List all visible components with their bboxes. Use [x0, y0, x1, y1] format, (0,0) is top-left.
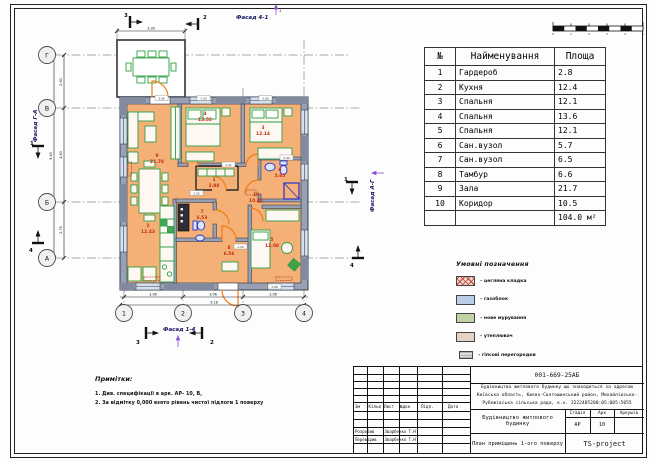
room-label-area: 6.53	[197, 215, 208, 221]
scale-tick: 4	[624, 32, 626, 36]
col-header-name: Найменування	[456, 48, 555, 66]
tb-role-name: Зварбенко Т.Н	[385, 437, 416, 442]
axis-label: 1	[122, 311, 126, 318]
cell-area: 12.4	[555, 80, 606, 95]
cell-num: 7	[425, 153, 456, 168]
legend-label: – гіпсові перегородки	[478, 353, 536, 358]
cell-area: 21.7	[555, 182, 606, 197]
axis-label: 3	[241, 311, 245, 318]
facade-top-ref: 1	[279, 9, 282, 13]
room-label-area: 13.55	[198, 117, 212, 123]
legend-swatch-pink	[456, 332, 475, 342]
dim-text: 3.30	[147, 27, 155, 31]
table-row: 6Сан.вузол5.7	[425, 138, 606, 153]
tb-company: TS-project	[565, 433, 644, 455]
tb-address-line: Рубежівська сільська рада, к.н. 32224852…	[472, 399, 642, 408]
section-label: 2	[203, 15, 207, 21]
tb-col-ndok: №док	[400, 404, 410, 409]
section-label: 1	[344, 177, 348, 183]
scale-tick: 3	[606, 32, 608, 36]
legend-item: – газоблок	[456, 291, 576, 310]
legend-swatch-hatch	[459, 351, 473, 359]
title-block: Зм Кільк Лист №док Підп. Дата Розробив З…	[353, 366, 643, 454]
tb-line	[354, 381, 470, 382]
section-label: 2	[210, 340, 214, 346]
tb-line	[354, 395, 470, 396]
legend-label: – нове мурування	[480, 316, 526, 321]
cell-area: 10.5	[555, 196, 606, 211]
dim-text: 3.06	[209, 293, 217, 297]
scale-bar: 0 1 2 3 4 5	[552, 22, 644, 36]
cell-name: Сан.вузол	[456, 153, 555, 168]
cell-area: 5.7	[555, 138, 606, 153]
tb-sheets-label: Аркушів	[614, 409, 644, 417]
cell-name: Сан.вузол	[456, 138, 555, 153]
table-row: 3Спальня12.1	[425, 95, 606, 110]
cell-num: 9	[425, 182, 456, 197]
tb-role-name: Зварбенко Т.Н	[385, 429, 416, 434]
room-label-area: 6.56	[224, 251, 235, 257]
cell-name: Тамбур	[456, 167, 555, 182]
tb-line	[354, 411, 470, 412]
cell-area: 6.5	[555, 153, 606, 168]
tb-project-code: 001-669-25АБ	[470, 367, 644, 383]
table-row: 8Тамбур6.6	[425, 167, 606, 182]
tb-col-lyst: Лист	[384, 404, 394, 409]
legend-label: – цегляна кладка	[480, 279, 527, 284]
scale-tick: 2	[588, 32, 590, 36]
axis-label: Б	[45, 200, 49, 207]
tb-sheet-value: 10	[590, 417, 614, 433]
table-row: 7Сан.вузол6.5	[425, 153, 606, 168]
legend-item: – утеплювач	[456, 328, 576, 347]
table-total-row: 104.0 м²	[425, 211, 606, 226]
axis-label: 2	[181, 311, 185, 318]
tb-col-pidp: Підп.	[421, 404, 434, 409]
dim-box: 1.50	[200, 97, 207, 101]
dim-box: 1.41	[225, 163, 232, 167]
cell-area: 12.1	[555, 95, 606, 110]
cell-total-area: 104.0 м²	[555, 211, 606, 226]
cell-num: 8	[425, 167, 456, 182]
room-label-num: 8	[227, 245, 230, 251]
room-label-area: 12.43	[141, 229, 155, 235]
legend-label: – газоблок	[480, 297, 508, 302]
dim-box: 3.06	[271, 285, 278, 289]
tb-role: Розробив	[355, 429, 374, 434]
dim-text: 9.18	[210, 301, 218, 305]
cell-num: 1	[425, 66, 456, 81]
scale-tick: 5	[642, 32, 644, 36]
notes-title: Примітки:	[95, 375, 345, 383]
legend-swatch-green	[456, 313, 475, 323]
tb-line	[417, 367, 418, 453]
room-schedule-table: № Найменування Площа 1Гардероб2.8 2Кухня…	[424, 47, 606, 226]
table-row: 10Коридор10.5	[425, 196, 606, 211]
cell-name: Спальня	[456, 95, 555, 110]
axis-label: Г	[45, 53, 49, 60]
axis-label: В	[45, 106, 49, 113]
table-row: 2Кухня12.4	[425, 80, 606, 95]
tb-role: Перевірив	[355, 437, 377, 442]
cell-num: 2	[425, 80, 456, 95]
tb-col-kilk: Кільк	[369, 404, 382, 409]
facade-top-label: Фасад 4-1	[236, 15, 269, 21]
tb-line	[354, 419, 470, 420]
legend-item: – нове мурування	[456, 309, 576, 328]
dim-text: 4.60	[59, 151, 63, 159]
note-line: 2. За відмітку 0,000 взято рівень чистої…	[95, 401, 345, 406]
room-label-num: 6	[278, 167, 281, 173]
cell-num	[425, 211, 456, 226]
cell-name: Гардероб	[456, 66, 555, 81]
room-label-num: 3	[261, 125, 264, 131]
notes: Примітки: 1. Див. специфікації в арк. АР…	[95, 375, 345, 410]
tb-line	[354, 374, 470, 375]
section-label: 3	[136, 340, 140, 346]
facade-right-label: Фасад А-Г	[370, 179, 376, 212]
legend: Умовні позначення – цегляна кладка – газ…	[456, 261, 576, 365]
cell-area: 13.6	[555, 109, 606, 124]
dim-text: 3.06	[269, 293, 277, 297]
table-row: 5Спальня12.1	[425, 124, 606, 139]
cell-area: 12.1	[555, 124, 606, 139]
porch	[117, 40, 185, 97]
room-label-num: 5	[270, 237, 273, 243]
room-label-num: 1	[212, 177, 215, 183]
legend-label: – утеплювач	[480, 334, 513, 339]
legend-title: Умовні позначення	[456, 261, 576, 268]
dim-box: 0.90	[283, 156, 290, 160]
room-label-area: 2.88	[209, 183, 220, 189]
room-label-area: 21.78	[150, 159, 164, 165]
cell-name: Спальня	[456, 109, 555, 124]
tb-sheet-title: План приміщень 1-ого поверху	[470, 433, 565, 455]
legend-swatch-brick	[456, 276, 475, 286]
room-label-area: 5.65	[275, 173, 286, 179]
room-label-num: 7	[200, 209, 203, 215]
dim-box: 2.05	[193, 192, 200, 196]
tb-stage-label: Стадія	[565, 409, 590, 417]
tb-sheet-label: Арк	[590, 409, 614, 417]
tb-stage-value: АР	[565, 417, 590, 433]
tb-line	[442, 367, 443, 453]
dim-box: 3.06	[262, 97, 269, 101]
dim-text: 3.06	[149, 293, 157, 297]
room-label-area: 12.14	[256, 131, 270, 137]
room-label-num: 4	[203, 111, 206, 117]
dim-text: 2.60	[59, 78, 63, 86]
facade-left-label: Фасад Г-А	[33, 109, 39, 142]
cell-name: Зала	[456, 182, 555, 197]
room-label-area: 12.08	[265, 243, 279, 249]
cell-num: 6	[425, 138, 456, 153]
section-label: 4	[29, 248, 33, 254]
dim-box: 3.06	[158, 97, 165, 101]
tb-object-name: Будівництво житлового будинку	[470, 409, 565, 433]
cell-area: 6.6	[555, 167, 606, 182]
section-label: 3	[124, 13, 128, 19]
tb-line	[354, 443, 470, 444]
table-row: 9Зала21.7	[425, 182, 606, 197]
facade-bottom-label: Фасад 1-4	[163, 327, 196, 333]
legend-item: – гіпсові перегородки	[456, 346, 576, 365]
cell-name: Кухня	[456, 80, 555, 95]
table-header-row: № Найменування Площа	[425, 48, 606, 66]
col-header-area: Площа	[555, 48, 606, 66]
cell-name: Спальня	[456, 124, 555, 139]
cell-num: 4	[425, 109, 456, 124]
room-label-area: 10.48	[249, 198, 263, 204]
cell-num: 5	[425, 124, 456, 139]
cell-num: 10	[425, 196, 456, 211]
legend-swatch-blue	[456, 295, 475, 305]
room-label-num: 9	[155, 153, 158, 159]
legend-item: – цегляна кладка	[456, 272, 576, 291]
room-label-num: 10	[253, 192, 259, 198]
tb-col-data: Дата	[448, 404, 458, 409]
dim-text: 9.45	[49, 152, 53, 160]
cell-name: Коридор	[456, 196, 555, 211]
table-row: 1Гардероб2.8	[425, 66, 606, 81]
dim-box: 1.20	[237, 245, 244, 249]
tb-col-zm: Зм	[355, 404, 360, 409]
tb-line	[354, 402, 470, 403]
col-header-num: №	[425, 48, 456, 66]
tb-line	[354, 388, 470, 389]
scale-tick: 1	[570, 32, 572, 36]
scale-tick: 0	[552, 32, 554, 36]
axis-label: 4	[302, 311, 306, 318]
cell-area: 2.8	[555, 66, 606, 81]
dim-text: 2.75	[59, 226, 63, 234]
note-line: 1. Див. специфікації в арк. АР- 10, В,	[95, 392, 345, 397]
section-label: 4	[350, 263, 354, 269]
cell-num: 3	[425, 95, 456, 110]
table-row: 4Спальня13.6	[425, 109, 606, 124]
cell-name	[456, 211, 555, 226]
room-label-num: 2	[146, 223, 149, 229]
boiler	[178, 204, 189, 231]
